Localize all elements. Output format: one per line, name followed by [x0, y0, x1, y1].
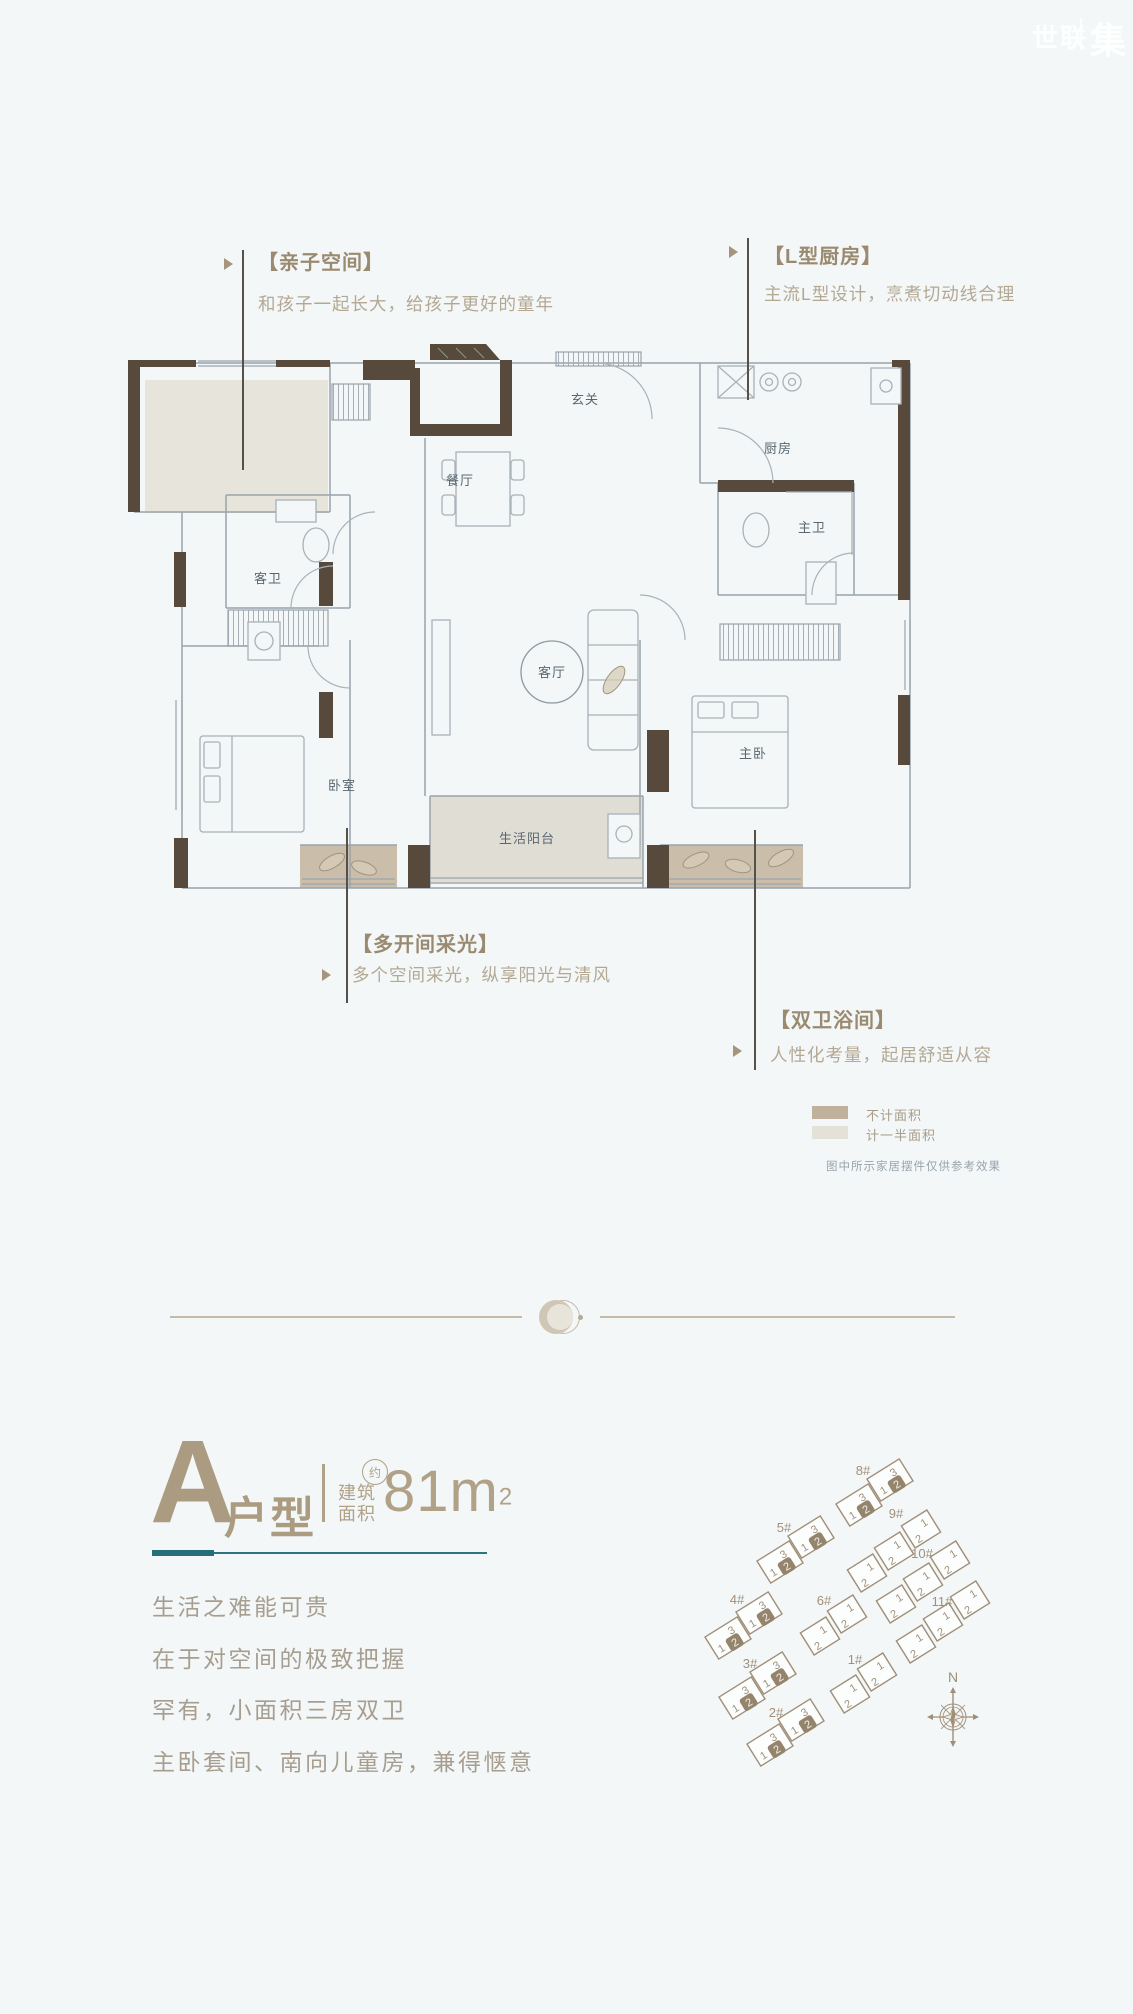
label-kitchen: 厨房 — [764, 441, 792, 456]
area-exponent: 2 — [499, 1484, 512, 1511]
floorplan: 玄关 餐厅 厨房 客卫 主卫 客厅 主卧 卧室 生活阳台 — [126, 340, 916, 900]
site-building: 12126# — [800, 1593, 867, 1656]
label-bedroom: 卧室 — [328, 778, 356, 793]
siteplan: 12121#1321322#1321323#1321324#1321325#12… — [700, 1440, 1010, 1780]
svg-text:10#: 10# — [911, 1546, 933, 1561]
watermark-brand-right: 集 — [1090, 12, 1126, 64]
callout-daylight-desc: 多个空间采光，纵享阳光与清风 — [352, 962, 611, 987]
label-balcony: 生活阳台 — [499, 831, 555, 846]
label-guest-bath: 客卫 — [254, 571, 282, 586]
callout-daylight-arrow-icon — [322, 969, 331, 981]
callout-kitchen-title: 【L型厨房】 — [764, 240, 882, 269]
divider-line-left — [170, 1316, 522, 1318]
svg-text:8#: 8# — [856, 1463, 871, 1478]
label-entry: 玄关 — [571, 392, 599, 407]
svg-text:1#: 1# — [848, 1652, 863, 1667]
compass-icon — [927, 1687, 979, 1747]
legend-label-half-area: 计一半面积 — [866, 1125, 936, 1144]
accent-underline-thin — [214, 1552, 487, 1554]
callout-parent-child-arrow-icon — [224, 258, 233, 270]
compass-north-label: N — [948, 1669, 958, 1685]
site-building: 1321322# — [747, 1699, 825, 1767]
unit-letter: A — [150, 1432, 235, 1532]
svg-text:2#: 2# — [769, 1705, 784, 1720]
slogan-line-1: 生活之难能可贵 — [152, 1588, 331, 1622]
slogan-line-2: 在于对空间的极致把握 — [152, 1640, 407, 1674]
svg-text:9#: 9# — [889, 1506, 904, 1521]
callout-parent-child-title: 【亲子空间】 — [258, 246, 384, 275]
callout-daylight-line — [346, 828, 348, 1003]
callout-parent-child-line — [242, 250, 244, 470]
watermark-divider — [1080, 18, 1082, 50]
legend-swatch-no-area — [812, 1106, 848, 1119]
site-building: 12121# — [830, 1652, 897, 1714]
callout-parent-child-desc: 和孩子一起长大，给孩子更好的童年 — [258, 291, 554, 316]
slogan-line-4: 主卧套间、南向儿童房，兼得惬意 — [152, 1743, 535, 1777]
poster-page: 世联 集 — [0, 0, 1133, 2014]
site-building: 12121211# — [896, 1581, 990, 1664]
svg-text:6#: 6# — [817, 1593, 832, 1608]
label-master-bath: 主卫 — [798, 520, 826, 535]
legend-label-no-area: 不计面积 — [866, 1105, 922, 1124]
label-dining: 餐厅 — [446, 473, 474, 488]
unit-title-divider — [322, 1464, 325, 1522]
accent-underline-thick — [152, 1550, 214, 1556]
label-living: 客厅 — [538, 665, 566, 680]
unit-suffix: 户型 — [224, 1482, 316, 1546]
label-master-bed: 主卧 — [739, 746, 767, 761]
callout-bath-arrow-icon — [733, 1045, 742, 1057]
area-number: 81 — [383, 1459, 450, 1524]
site-building: 1321324# — [705, 1592, 783, 1660]
svg-text:5#: 5# — [777, 1520, 792, 1535]
callout-daylight-title: 【多开间采光】 — [352, 928, 499, 957]
svg-text:3#: 3# — [743, 1656, 758, 1671]
divider-line-right — [600, 1316, 955, 1318]
area-prefix-1: 建筑 — [338, 1483, 376, 1504]
callout-kitchen-line — [747, 238, 749, 400]
area-unit: m — [450, 1459, 499, 1524]
divider-dot — [578, 1315, 583, 1320]
legend-swatch-half-area — [812, 1126, 848, 1139]
callout-kitchen-desc: 主流L型设计，烹煮切动线合理 — [764, 281, 1015, 306]
svg-text:11#: 11# — [932, 1594, 953, 1609]
area-prefix-2: 面积 — [338, 1504, 376, 1525]
legend-note: 图中所示家居摆件仅供参考效果 — [826, 1158, 1001, 1174]
site-building: 1321323# — [719, 1652, 797, 1720]
callout-bath-line — [754, 830, 756, 1070]
callout-bath-desc: 人性化考量，起居舒适从容 — [770, 1042, 992, 1067]
slogan-line-3: 罕有，小面积三房双卫 — [152, 1691, 407, 1725]
callout-bath-title: 【双卫浴间】 — [770, 1004, 896, 1033]
area-value: 81m2 — [383, 1458, 512, 1525]
site-building: 1321325# — [757, 1516, 835, 1584]
siteplan-buildings: 12121#1321322#1321323#1321324#1321325#12… — [705, 1459, 990, 1767]
divider-moon-inner — [547, 1304, 573, 1330]
callout-kitchen-arrow-icon — [729, 246, 738, 258]
svg-text:4#: 4# — [730, 1592, 745, 1607]
